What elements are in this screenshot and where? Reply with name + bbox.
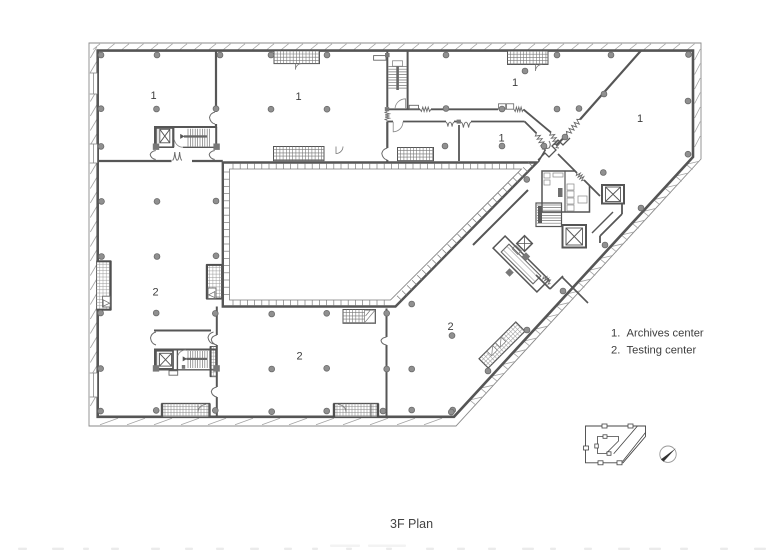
svg-text:2: 2 [296, 351, 302, 363]
svg-text:2: 2 [152, 287, 158, 299]
svg-text:3F Plan: 3F Plan [390, 517, 433, 531]
svg-text:1: 1 [295, 91, 301, 103]
svg-text:2. Testing center: 2. Testing center [611, 345, 696, 357]
svg-text:1: 1 [150, 90, 156, 102]
svg-text:1: 1 [637, 113, 643, 125]
svg-text:2: 2 [447, 321, 453, 333]
svg-text:1: 1 [498, 133, 504, 145]
svg-text:1. Archives center: 1. Archives center [611, 328, 704, 340]
svg-text:1: 1 [512, 77, 518, 89]
